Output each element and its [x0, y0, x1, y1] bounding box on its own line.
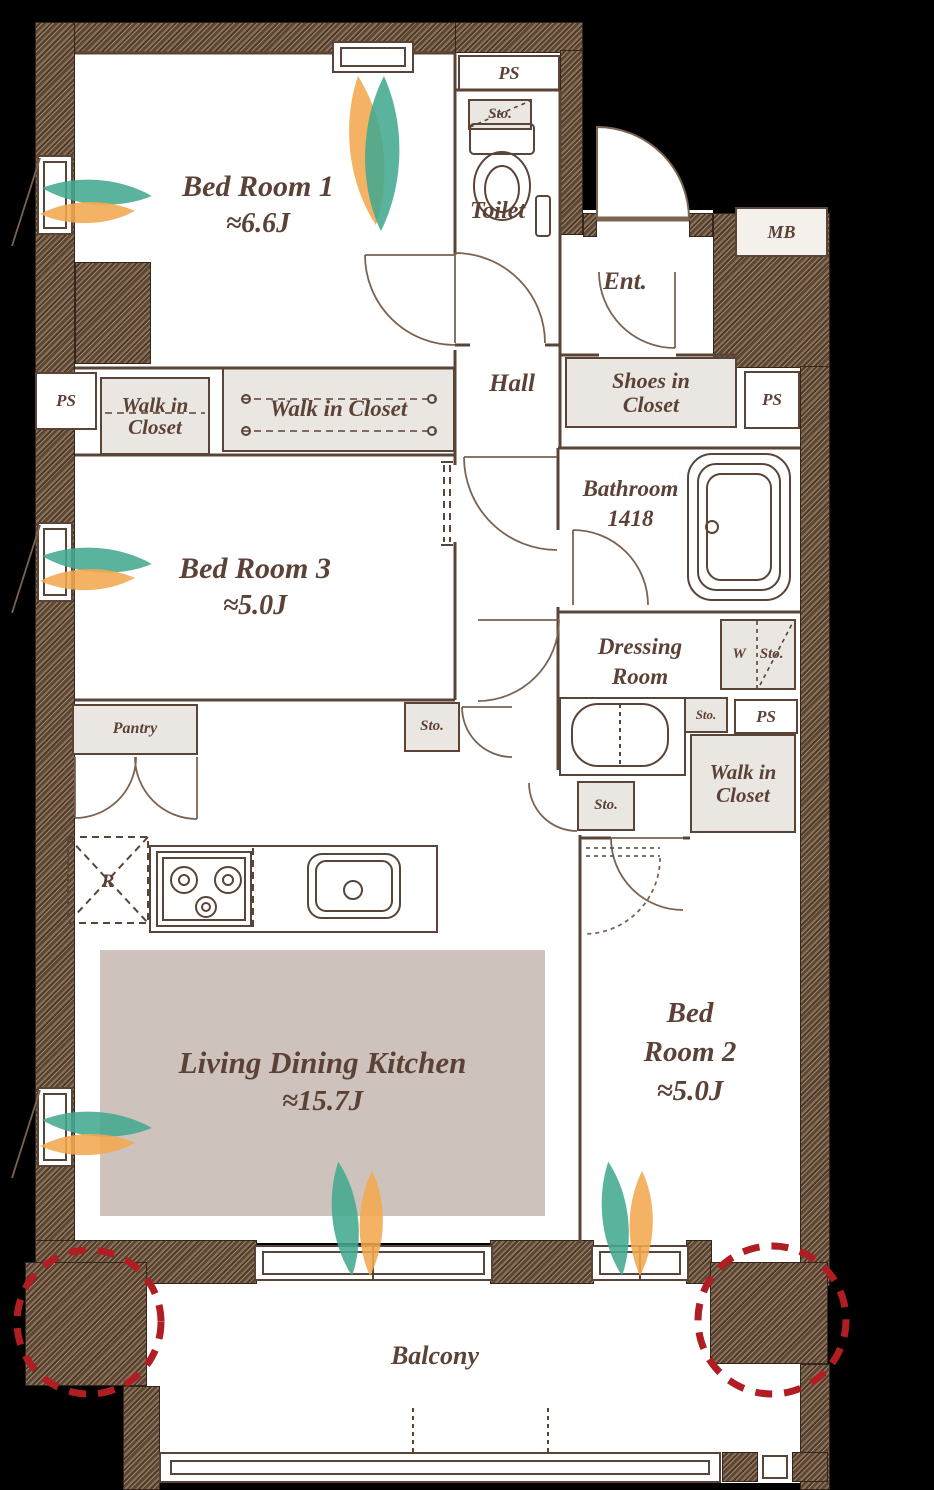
ldk-size: ≈15.7J [100, 1083, 545, 1119]
window-top-bedroom1 [333, 42, 413, 72]
door-arc-entrance [597, 127, 689, 219]
door-arc-bathroom [573, 530, 648, 605]
bedroom3-name: Bed Room 3 [90, 550, 420, 588]
room-label-bedroom1: Bed Room 1 ≈6.6J [93, 168, 423, 241]
door-arc-storage-corridor [462, 707, 512, 757]
room-label-entrance: Ent. [575, 266, 675, 297]
door-arc-pantry-double [75, 757, 197, 819]
room-label-balcony: Balcony [330, 1340, 540, 1373]
door-arc-hall-ldk [478, 620, 559, 701]
door-arc-dressing [529, 783, 577, 831]
bedroom2-line2: Room 2 [600, 1033, 780, 1072]
balcony-railing [160, 1408, 720, 1482]
room-label-bedroom2: Bed Room 2 ≈5.0J [600, 994, 780, 1111]
window-left-bedroom3 [12, 523, 72, 613]
bedroom2-line1: Bed [600, 994, 780, 1033]
door-arc-toilet [455, 253, 545, 343]
bathroom-line2: 1418 [558, 504, 703, 534]
bathroom-line1: Bathroom [558, 474, 703, 504]
bathtub-fixture [688, 454, 790, 600]
ldk-name: Living Dining Kitchen [100, 1044, 545, 1083]
door-arc-bedroom1 [365, 255, 455, 345]
dressing-line2: Room [558, 662, 722, 692]
bedroom2-size: ≈5.0J [600, 1072, 780, 1111]
dressing-line1: Dressing [558, 632, 722, 662]
room-label-bedroom3: Bed Room 3 ≈5.0J [90, 550, 420, 623]
entrance-name: Ent. [575, 266, 675, 297]
washbasin-fixture [560, 698, 685, 775]
bedroom3-size: ≈5.0J [90, 588, 420, 623]
door-arc-bedroom2-closet-dashed [584, 858, 660, 934]
bedroom1-size: ≈6.6J [93, 206, 423, 241]
room-label-dressing: Dressing Room [558, 632, 722, 692]
room-label-toilet: Toilet [445, 196, 550, 226]
toilet-name: Toilet [445, 196, 550, 226]
room-label-ldk: Living Dining Kitchen ≈15.7J [100, 1044, 545, 1119]
floor-plan: PS Sto. Walk in Closet Walk in Closet Sh… [0, 0, 934, 1490]
window-left-ldk [12, 1088, 72, 1178]
window-left-bedroom1 [12, 156, 72, 246]
sink-fixture [308, 854, 400, 918]
column-highlight-circle-left [17, 1250, 161, 1394]
refrigerator-label: R [68, 840, 148, 924]
stove-fixture [157, 852, 251, 926]
hall-name: Hall [452, 368, 572, 399]
sliding-door-bedroom3 [441, 462, 453, 545]
bedroom1-name: Bed Room 1 [93, 168, 423, 206]
column-highlight-circle-right [698, 1246, 846, 1394]
room-label-bathroom: Bathroom 1418 [558, 474, 703, 534]
room-label-hall: Hall [452, 368, 572, 399]
door-arc-hall-north [464, 457, 557, 550]
refrigerator-r: R [102, 871, 115, 892]
balcony-name: Balcony [330, 1340, 540, 1373]
